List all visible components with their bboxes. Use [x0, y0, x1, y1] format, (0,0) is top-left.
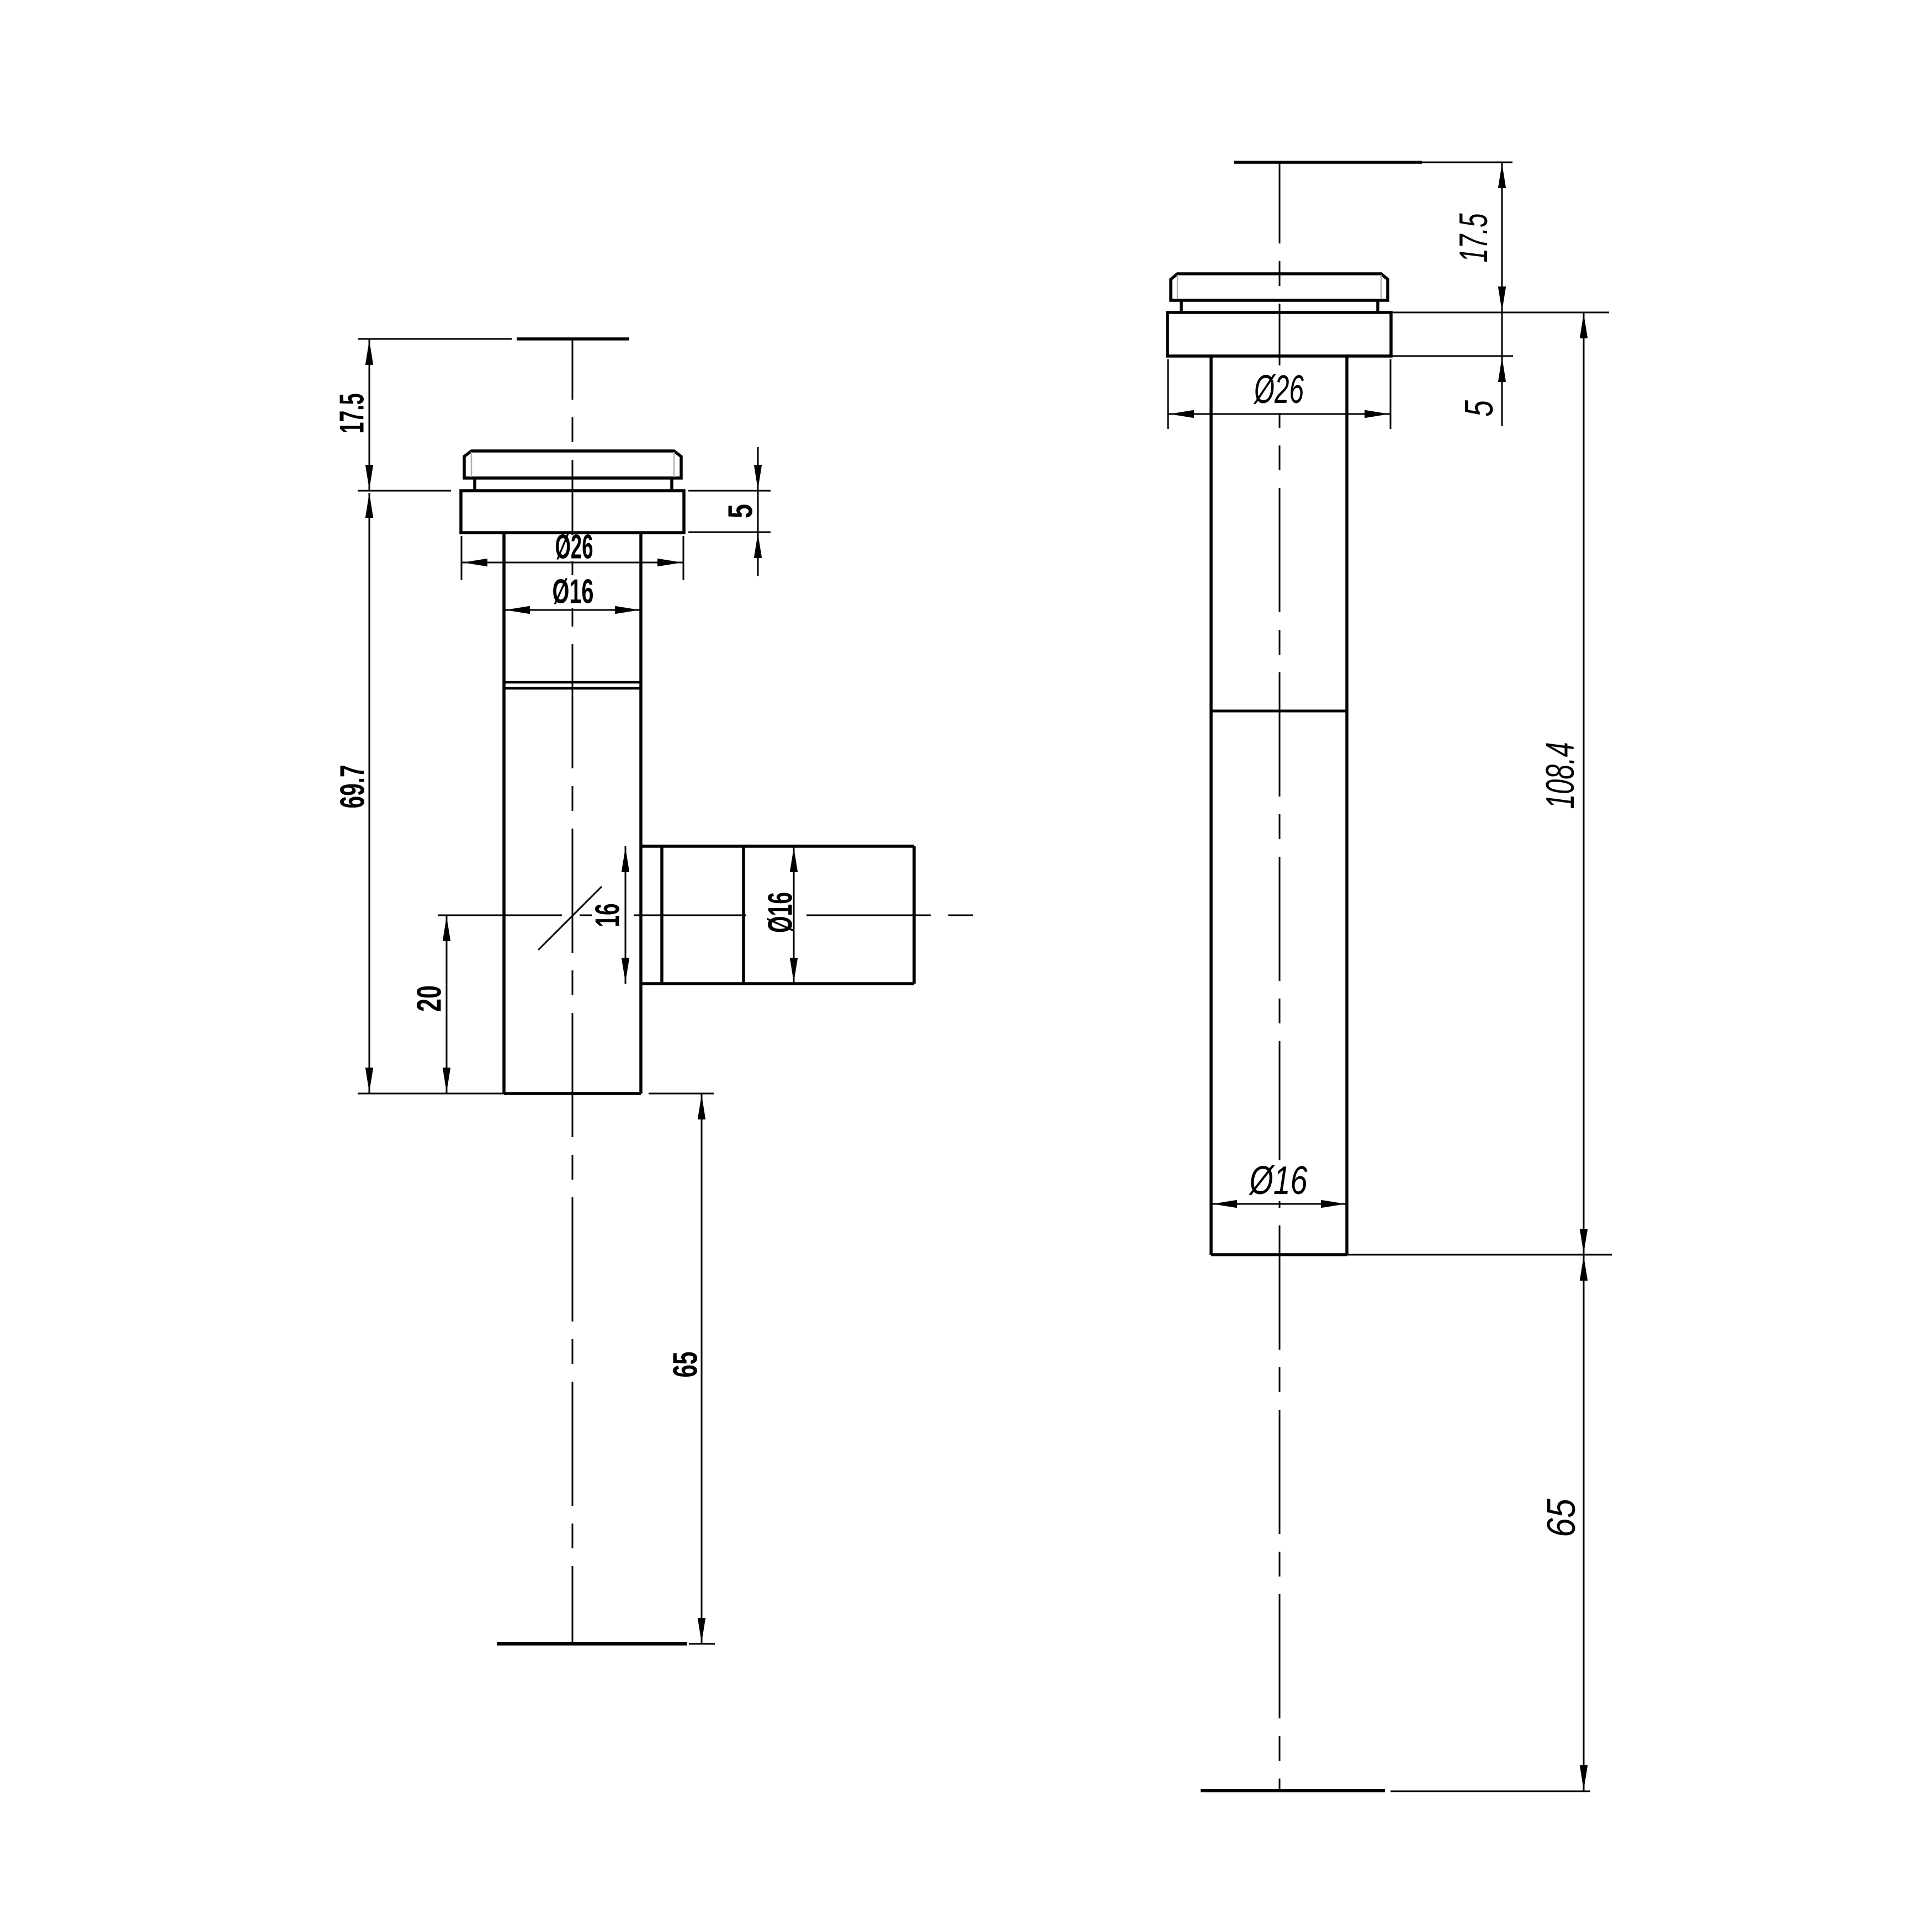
- svg-text:Ø26: Ø26: [555, 528, 593, 566]
- svg-text:Ø16: Ø16: [762, 892, 800, 933]
- svg-text:69.7: 69.7: [334, 765, 372, 809]
- svg-text:Ø16: Ø16: [553, 573, 594, 611]
- svg-text:17.5: 17.5: [333, 394, 371, 434]
- svg-text:Ø26: Ø26: [1254, 368, 1304, 412]
- svg-text:65: 65: [667, 1352, 705, 1378]
- svg-text:65: 65: [1540, 1498, 1584, 1537]
- svg-text:20: 20: [411, 985, 449, 1012]
- svg-text:108.4: 108.4: [1538, 742, 1583, 809]
- svg-text:Ø16: Ø16: [1249, 1159, 1308, 1203]
- svg-text:16: 16: [589, 904, 627, 927]
- svg-text:5: 5: [1457, 400, 1501, 417]
- svg-text:5: 5: [722, 504, 760, 518]
- svg-text:17.5: 17.5: [1452, 213, 1496, 263]
